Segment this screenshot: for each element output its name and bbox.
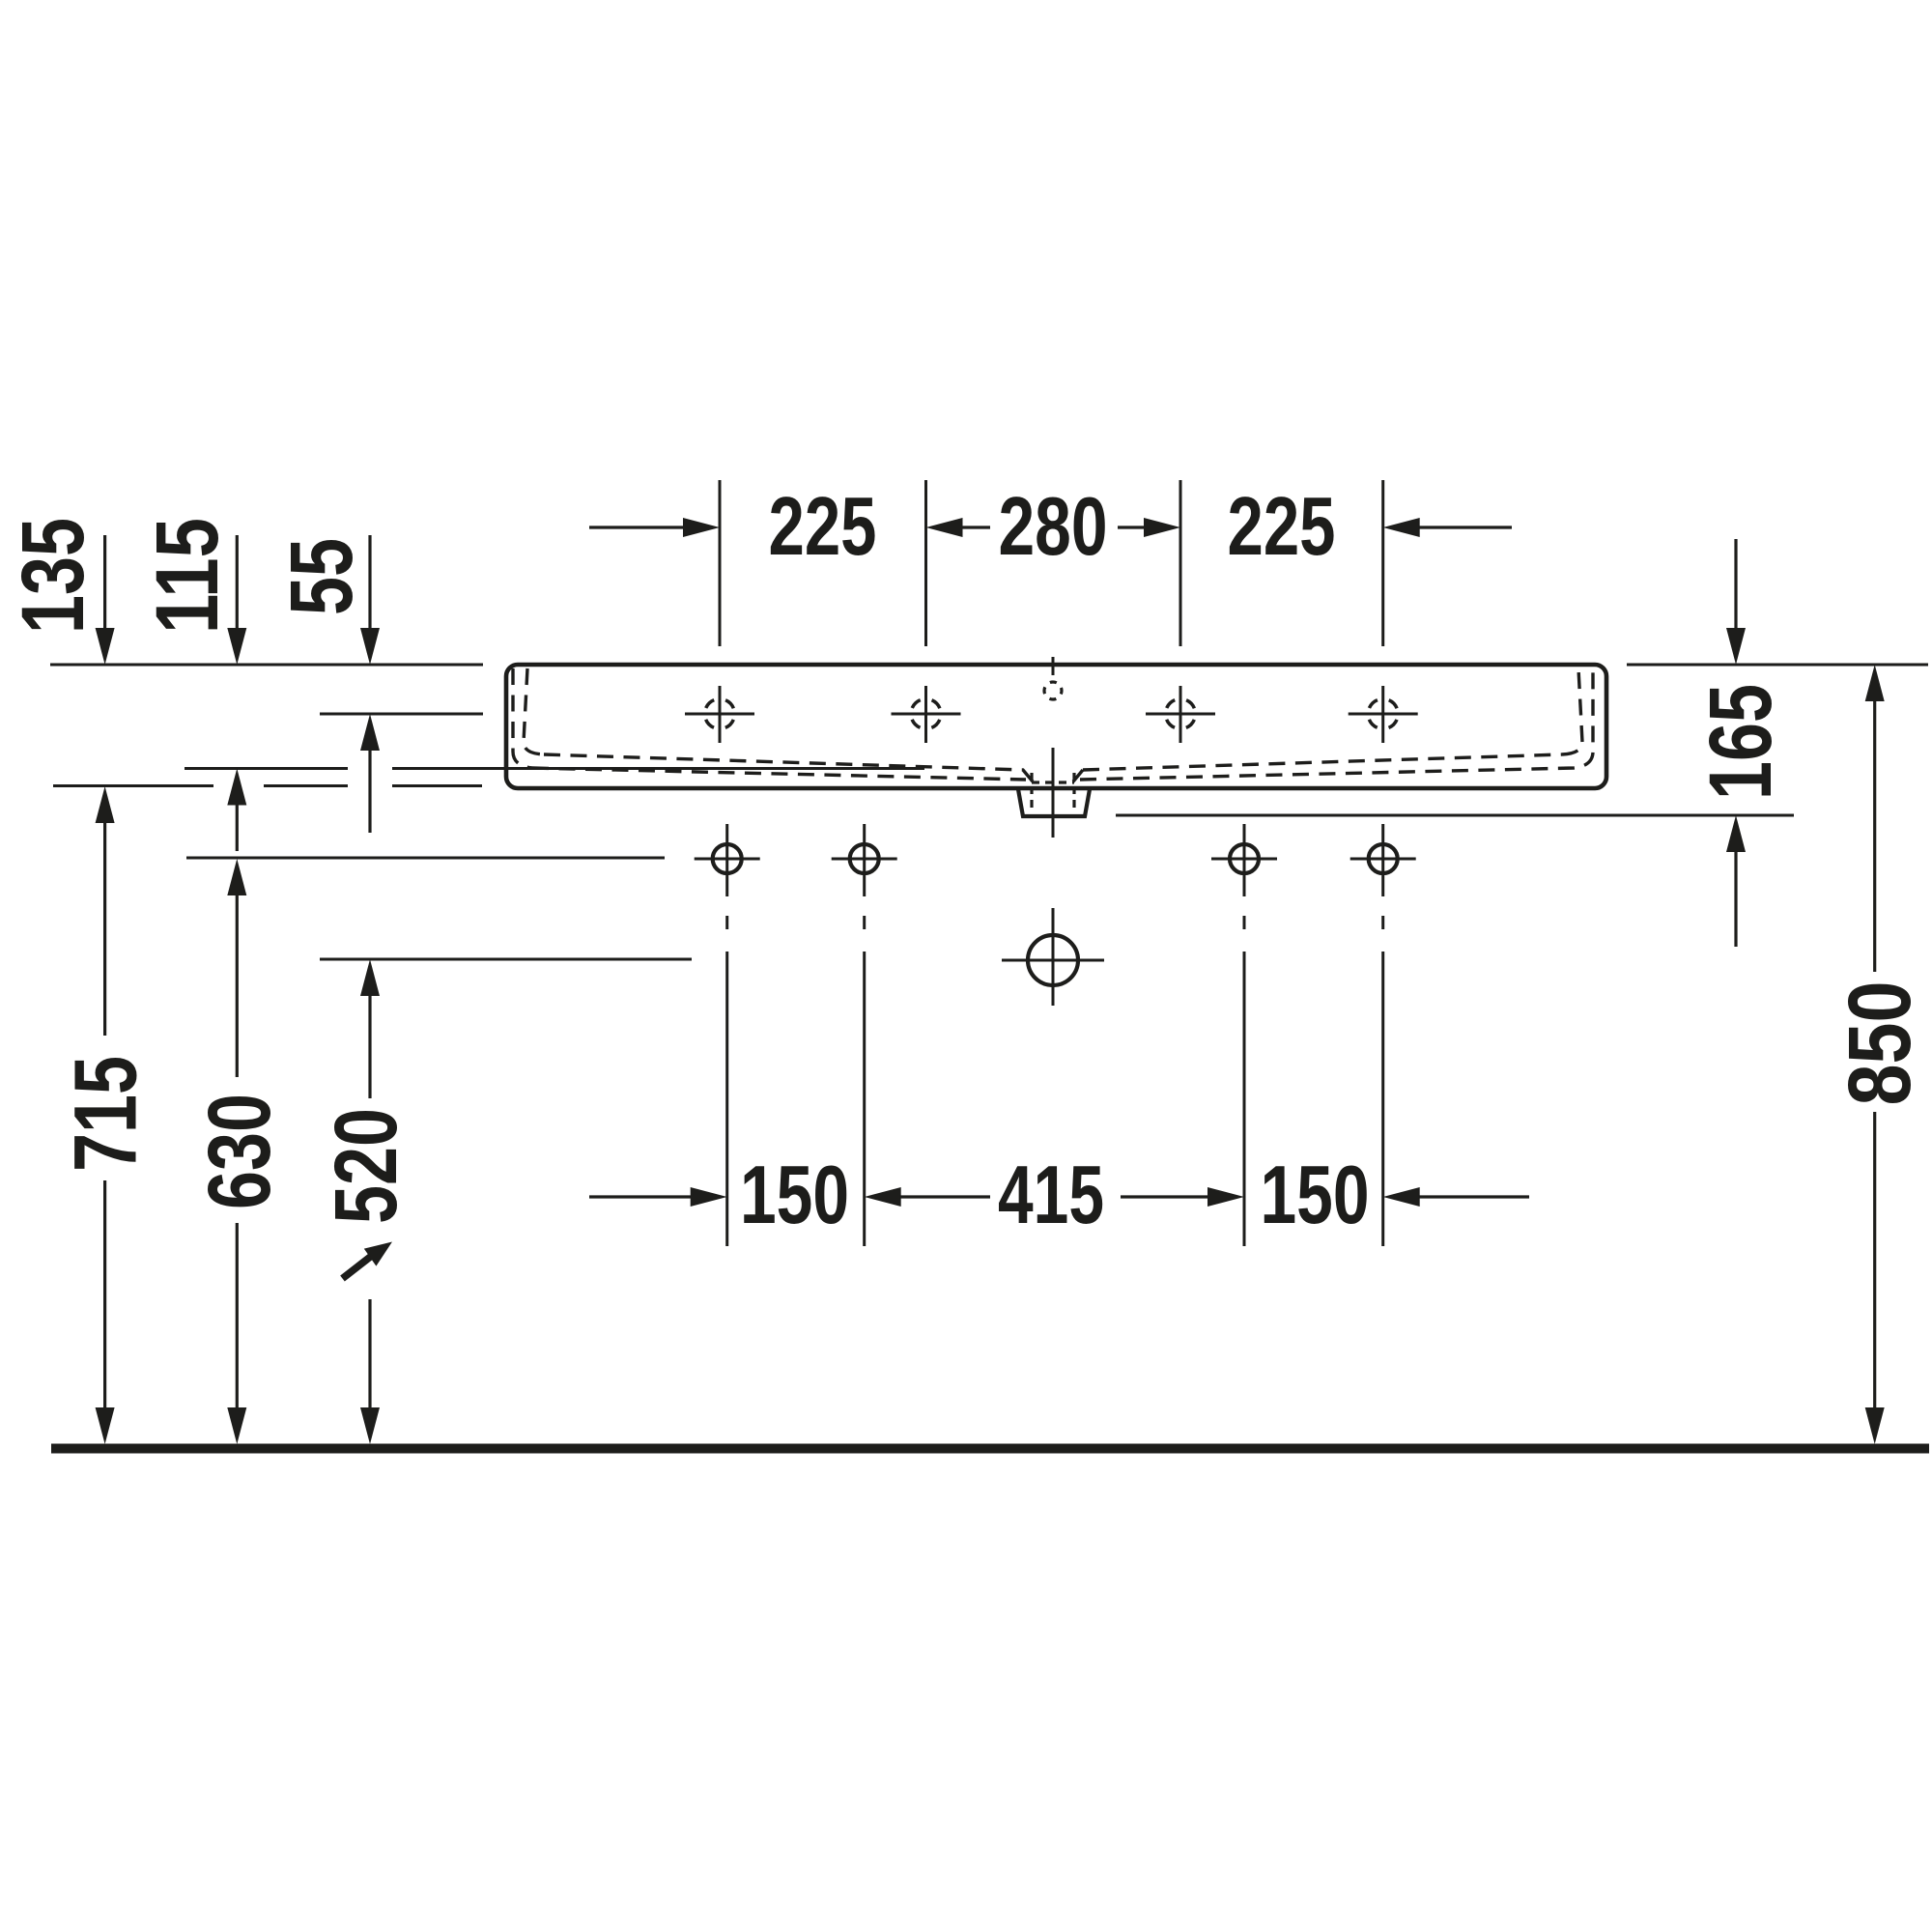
svg-text:415: 415 (998, 1150, 1104, 1241)
svg-text:280: 280 (999, 481, 1108, 573)
svg-text:715: 715 (57, 1056, 156, 1172)
svg-text:165: 165 (1691, 684, 1790, 800)
svg-text:150: 150 (740, 1150, 849, 1241)
svg-text:630: 630 (190, 1094, 289, 1209)
svg-text:520: 520 (317, 1108, 415, 1224)
svg-text:150: 150 (1261, 1150, 1370, 1241)
svg-text:55: 55 (272, 538, 371, 615)
svg-text:115: 115 (138, 518, 237, 634)
svg-text:225: 225 (1228, 481, 1336, 573)
svg-text:850: 850 (1831, 981, 1929, 1106)
svg-text:135: 135 (4, 518, 102, 634)
svg-text:225: 225 (769, 481, 877, 573)
